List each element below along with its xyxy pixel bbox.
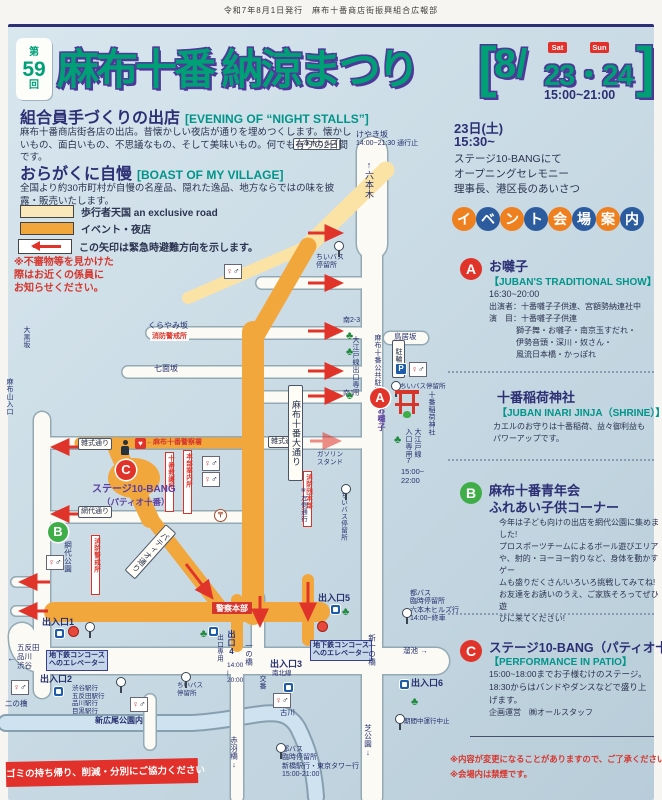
suspicious-object-warning: ※不審物等を見かけた 際はお近くの係員に お知らせください。 [14,256,114,295]
venue-badge: イベント会場案内 [452,207,644,231]
legend-swatch-event [20,222,74,235]
venue-badge-char: 内 [620,207,644,231]
venue-badge-char: ベ [476,207,500,231]
ohayashi-title-en: 【JUBAN'S TRADITIONAL SHOW】 [489,273,657,288]
venue-badge-char: 会 [548,207,572,231]
boast-title: おらがくに自慢 [20,160,132,184]
change-note: ※内容が変更になることがありますので、ご了承ください。 [450,753,662,765]
opening-start-time: 15:30~ [454,134,495,149]
venue-badge-char: ン [500,207,524,231]
boast-title-en: [BOAST OF MY VILLAGE] [137,168,283,182]
divider-solid [470,736,654,737]
kids-corner-title: ふれあい子供コーナー [489,497,619,516]
legend-row-event: イベント・夜店 [20,221,151,236]
night-stalls-title-en: [EVENING OF “NIGHT STALLS”] [185,112,369,126]
stage-credit: 企画運営 ㈱オールスタッフ [489,707,593,719]
divider-dotted-3 [448,613,654,615]
kids-corner-body: 今年は子ども向けの出店を網代公園に集めま した! プロスポーツチームによるボール… [499,517,662,625]
no-smoking-note: ※会場内は禁煙です。 [450,768,532,780]
ohayashi-program-list: 獅子舞・お囃子・南京玉すだれ・ 伊勢音頭・深川・奴さん・ 風流日本橋・かっぽれ [516,325,636,361]
venue-badge-c: C [460,640,482,662]
patio-plaza [108,458,160,498]
venue-badge-char: イ [452,207,476,231]
venue-badge-a: A [460,258,482,280]
evacuation-arrow-icon [18,239,72,254]
legend-row-arrow: この矢印は緊急時避難方向を示します。 [18,239,258,254]
garbage-banner: ゴミの持ち帰り、削減・分別にご協力ください [6,758,198,787]
inari-shrine-title-en: 【JUBAN INARI JINJA（SHRINE）】 [497,404,662,419]
opening-ceremony-text: ステージ10-BANGにて オープニングセレモニー 理事長、港区長のあいさつ [454,152,580,198]
stage-body: 15:00~18:00までお子様むけのステージ。 18:30からはバンドやダンス… [489,668,647,706]
venue-badge-char: 案 [596,207,620,231]
ohayashi-program-head: 演 目：十番囃子子供連 [489,313,577,325]
legend-row-pedestrian: 歩行者天国 an exclusive road [20,204,218,219]
ohayashi-time: 16:30~20:00 [489,288,539,302]
night-stalls-body: 麻布十番商店街各店の出店。昔懐かしい夜店が通りを埋めつくします。懐かしいもの、面… [20,127,356,165]
night-stalls-title: 組合員手づくりの出店 [20,104,180,128]
stage-title-en: 【PERFORMANCE IN PATIO】 [489,653,632,668]
divider-dotted-2 [448,459,654,461]
legend-swatch-pedestrian [20,205,74,218]
flyer-page: 令和7年8月1日発行 麻布十番商店街振興組合広報部 [0,0,662,800]
venue-badge-char: ト [524,207,548,231]
inari-shrine-body: カエルのお守りは十番稲荷、益々御利益も パワーアップです。 [493,421,645,445]
venue-badge-b: B [460,482,482,504]
ohayashi-cast: 出演者：十番囃子子供連、宮額勢納連社中 [489,301,641,313]
venue-badge-char: 場 [572,207,596,231]
divider-dotted-1 [448,371,654,373]
